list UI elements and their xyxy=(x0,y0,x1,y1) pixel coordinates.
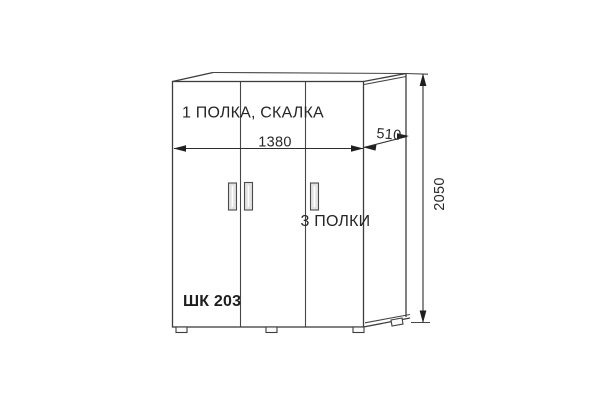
arrow-down-icon xyxy=(420,311,427,324)
top-left-depth-edge xyxy=(173,73,214,82)
foot-left xyxy=(176,327,187,333)
foot-right-back xyxy=(391,318,403,326)
top-section-label: 1 ПОЛКА, СКАЛКА xyxy=(182,105,324,122)
foot-middle xyxy=(266,327,277,333)
arrow-right-icon xyxy=(351,145,364,152)
arrow-up-icon xyxy=(420,74,427,87)
depth-dimension: 510 xyxy=(364,126,410,151)
width-dimension-value: 1380 xyxy=(258,135,291,151)
foot-right-front xyxy=(353,327,364,333)
wardrobe-feet xyxy=(176,318,403,333)
depth-dimension-value: 510 xyxy=(376,126,402,144)
right-section-label: 3 ПОЛКИ xyxy=(301,213,371,230)
height-dimension-value: 2050 xyxy=(432,177,448,210)
top-back-edge-and-extension xyxy=(213,73,428,75)
width-dimension: 1380 xyxy=(174,135,364,152)
arrow-left-icon xyxy=(174,145,187,152)
drawing-svg: 1380 510 2050 1 ПОЛКА, СКАЛКА 3 ПОЛКИ ШК… xyxy=(0,0,600,405)
wardrobe-technical-drawing: 1380 510 2050 1 ПОЛКА, СКАЛКА 3 ПОЛКИ ШК… xyxy=(0,0,600,405)
height-dimension: 2050 xyxy=(420,74,448,324)
model-label: ШК 203 xyxy=(183,293,241,310)
